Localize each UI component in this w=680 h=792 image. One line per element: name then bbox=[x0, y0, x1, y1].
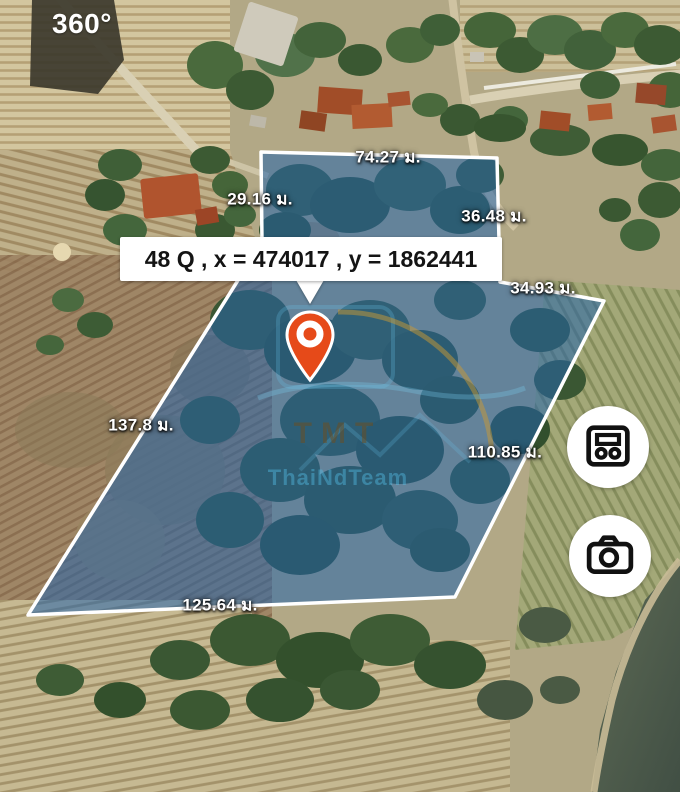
measurement-label-mid-right: 34.93 ม. bbox=[510, 275, 576, 302]
watermark-subtitle-text: ThaiNdTeam bbox=[268, 465, 408, 491]
watermark-brand-text: TMT bbox=[294, 417, 383, 451]
map-viewport: TMT ThaiNdTeam 74.27 ม. 29.16 ม. 36.48 ม… bbox=[0, 0, 680, 792]
measurement-label-bottom: 125.64 ม. bbox=[182, 592, 257, 619]
camera-icon bbox=[586, 534, 634, 579]
measurement-label-left: 137.8 ม. bbox=[108, 412, 174, 439]
measurement-label-upper-right: 36.48 ม. bbox=[461, 203, 527, 230]
meter-card-icon bbox=[585, 423, 631, 472]
camera-button[interactable] bbox=[569, 515, 651, 597]
measurement-label-right: 110.85 ม. bbox=[468, 439, 542, 466]
coordinate-callout: 48 Q , x = 474017 , y = 1862441 bbox=[120, 237, 502, 281]
watermark-logo bbox=[0, 0, 680, 792]
measurement-label-top: 74.27 ม. bbox=[355, 144, 421, 171]
area-summary-button[interactable] bbox=[567, 406, 649, 488]
coordinate-callout-pointer bbox=[296, 280, 324, 304]
measurement-label-upper-left: 29.16 ม. bbox=[227, 186, 293, 213]
mode-badge-360: 360° bbox=[52, 8, 112, 40]
map-pin[interactable] bbox=[285, 310, 335, 384]
